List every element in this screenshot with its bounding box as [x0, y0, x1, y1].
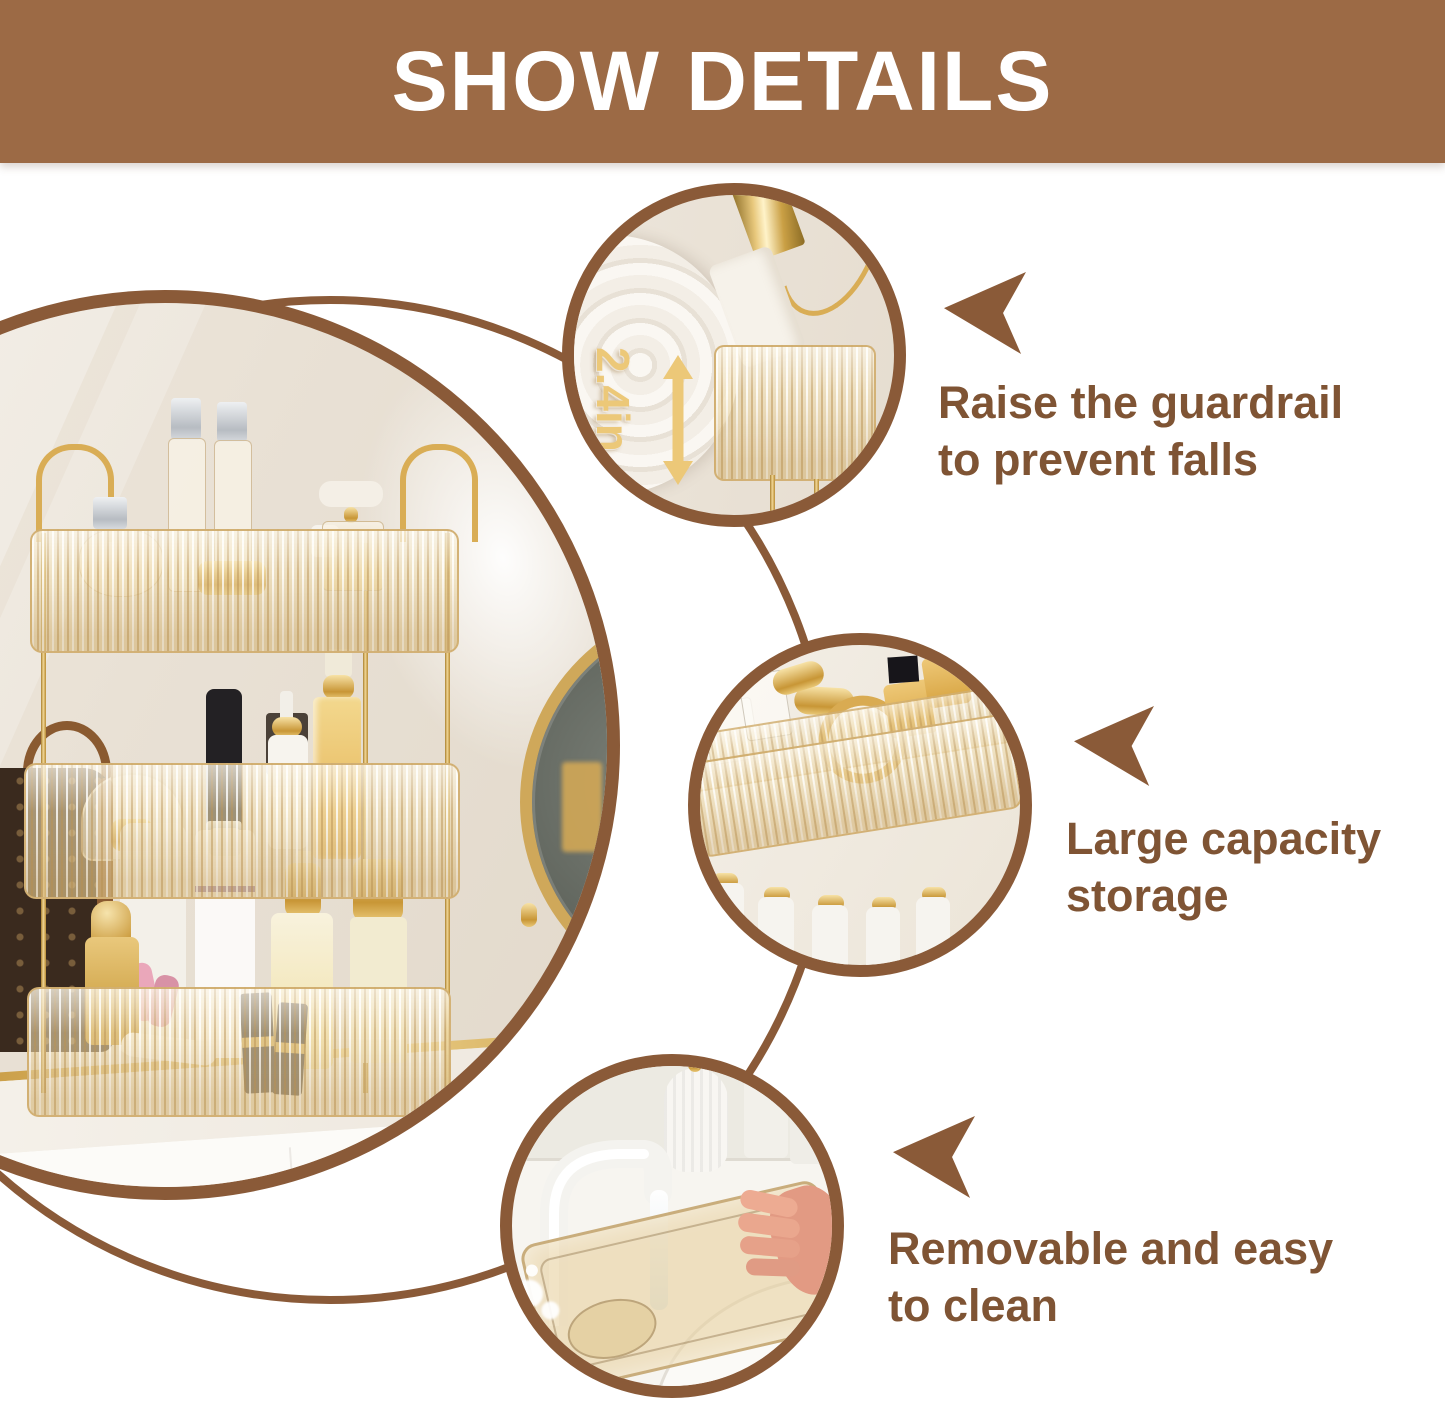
measurement-label: 2.4in: [586, 347, 640, 452]
mirror-reflection: [562, 762, 602, 852]
rack-leg: [814, 479, 819, 515]
amber-bottle-cap: [325, 649, 352, 677]
hand-finger: [746, 1258, 801, 1277]
white-cylinder-bottle: [706, 883, 744, 961]
vertical-double-arrow-icon: [658, 355, 698, 485]
detail-circle-guardrail: 2.4in: [562, 183, 906, 527]
caption-line: to prevent falls: [938, 431, 1343, 488]
white-pump-bottle: [744, 1066, 788, 1158]
left-arrow-icon: [891, 1116, 977, 1198]
caption-clean: Removable and easy to clean: [888, 1220, 1333, 1334]
product-photo-circle: [0, 290, 620, 1200]
left-arrow-icon: [1070, 706, 1158, 786]
caption-line: Raise the guardrail: [938, 374, 1343, 431]
white-cylinder-bottle: [916, 897, 950, 965]
mirror-reflection: [616, 787, 620, 853]
banner-title: SHOW DETAILS: [392, 33, 1054, 130]
white-cylinder-bottle: [866, 907, 900, 975]
caption-capacity: Large capacity storage: [1066, 810, 1381, 924]
tray-tier-3: [27, 987, 451, 1117]
left-arrow-icon: [940, 272, 1030, 354]
vase-finial: [688, 1058, 702, 1072]
amber-bottle-neck: [323, 675, 354, 699]
tray-tier-2: [24, 763, 460, 899]
mirror-knob: [521, 903, 537, 927]
rack-handle-arch-right: [400, 444, 478, 542]
banner: SHOW DETAILS: [0, 0, 1445, 163]
gold-pump-cap: [91, 901, 131, 941]
white-cylinder-bottle: [758, 897, 794, 969]
caption-line: Removable and easy: [888, 1220, 1333, 1277]
glass-stopper: [748, 653, 773, 676]
spray-cap: [217, 402, 247, 442]
tray-tier-1: [30, 529, 459, 653]
flower-cap: [319, 481, 383, 507]
caption-line: Large capacity: [1066, 810, 1381, 867]
rack-leg: [770, 475, 775, 515]
product-infographic: 2.4in: [0, 0, 1445, 1406]
spray-cap: [171, 398, 201, 440]
guardrail-cup: [714, 345, 876, 481]
caption-guardrail: Raise the guardrail to prevent falls: [938, 374, 1343, 488]
black-cube-cap: [887, 655, 919, 683]
detail-circle-clean: [500, 1054, 844, 1398]
dropper-collar: [272, 717, 302, 737]
caption-line: storage: [1066, 867, 1381, 924]
mini-gold-spray: [688, 675, 704, 711]
caption-line: to clean: [888, 1277, 1333, 1334]
glass-stopper: [714, 682, 738, 704]
detail-circle-capacity: [688, 633, 1032, 977]
white-cylinder-bottle: [812, 905, 848, 977]
cube-cap: [93, 497, 127, 529]
